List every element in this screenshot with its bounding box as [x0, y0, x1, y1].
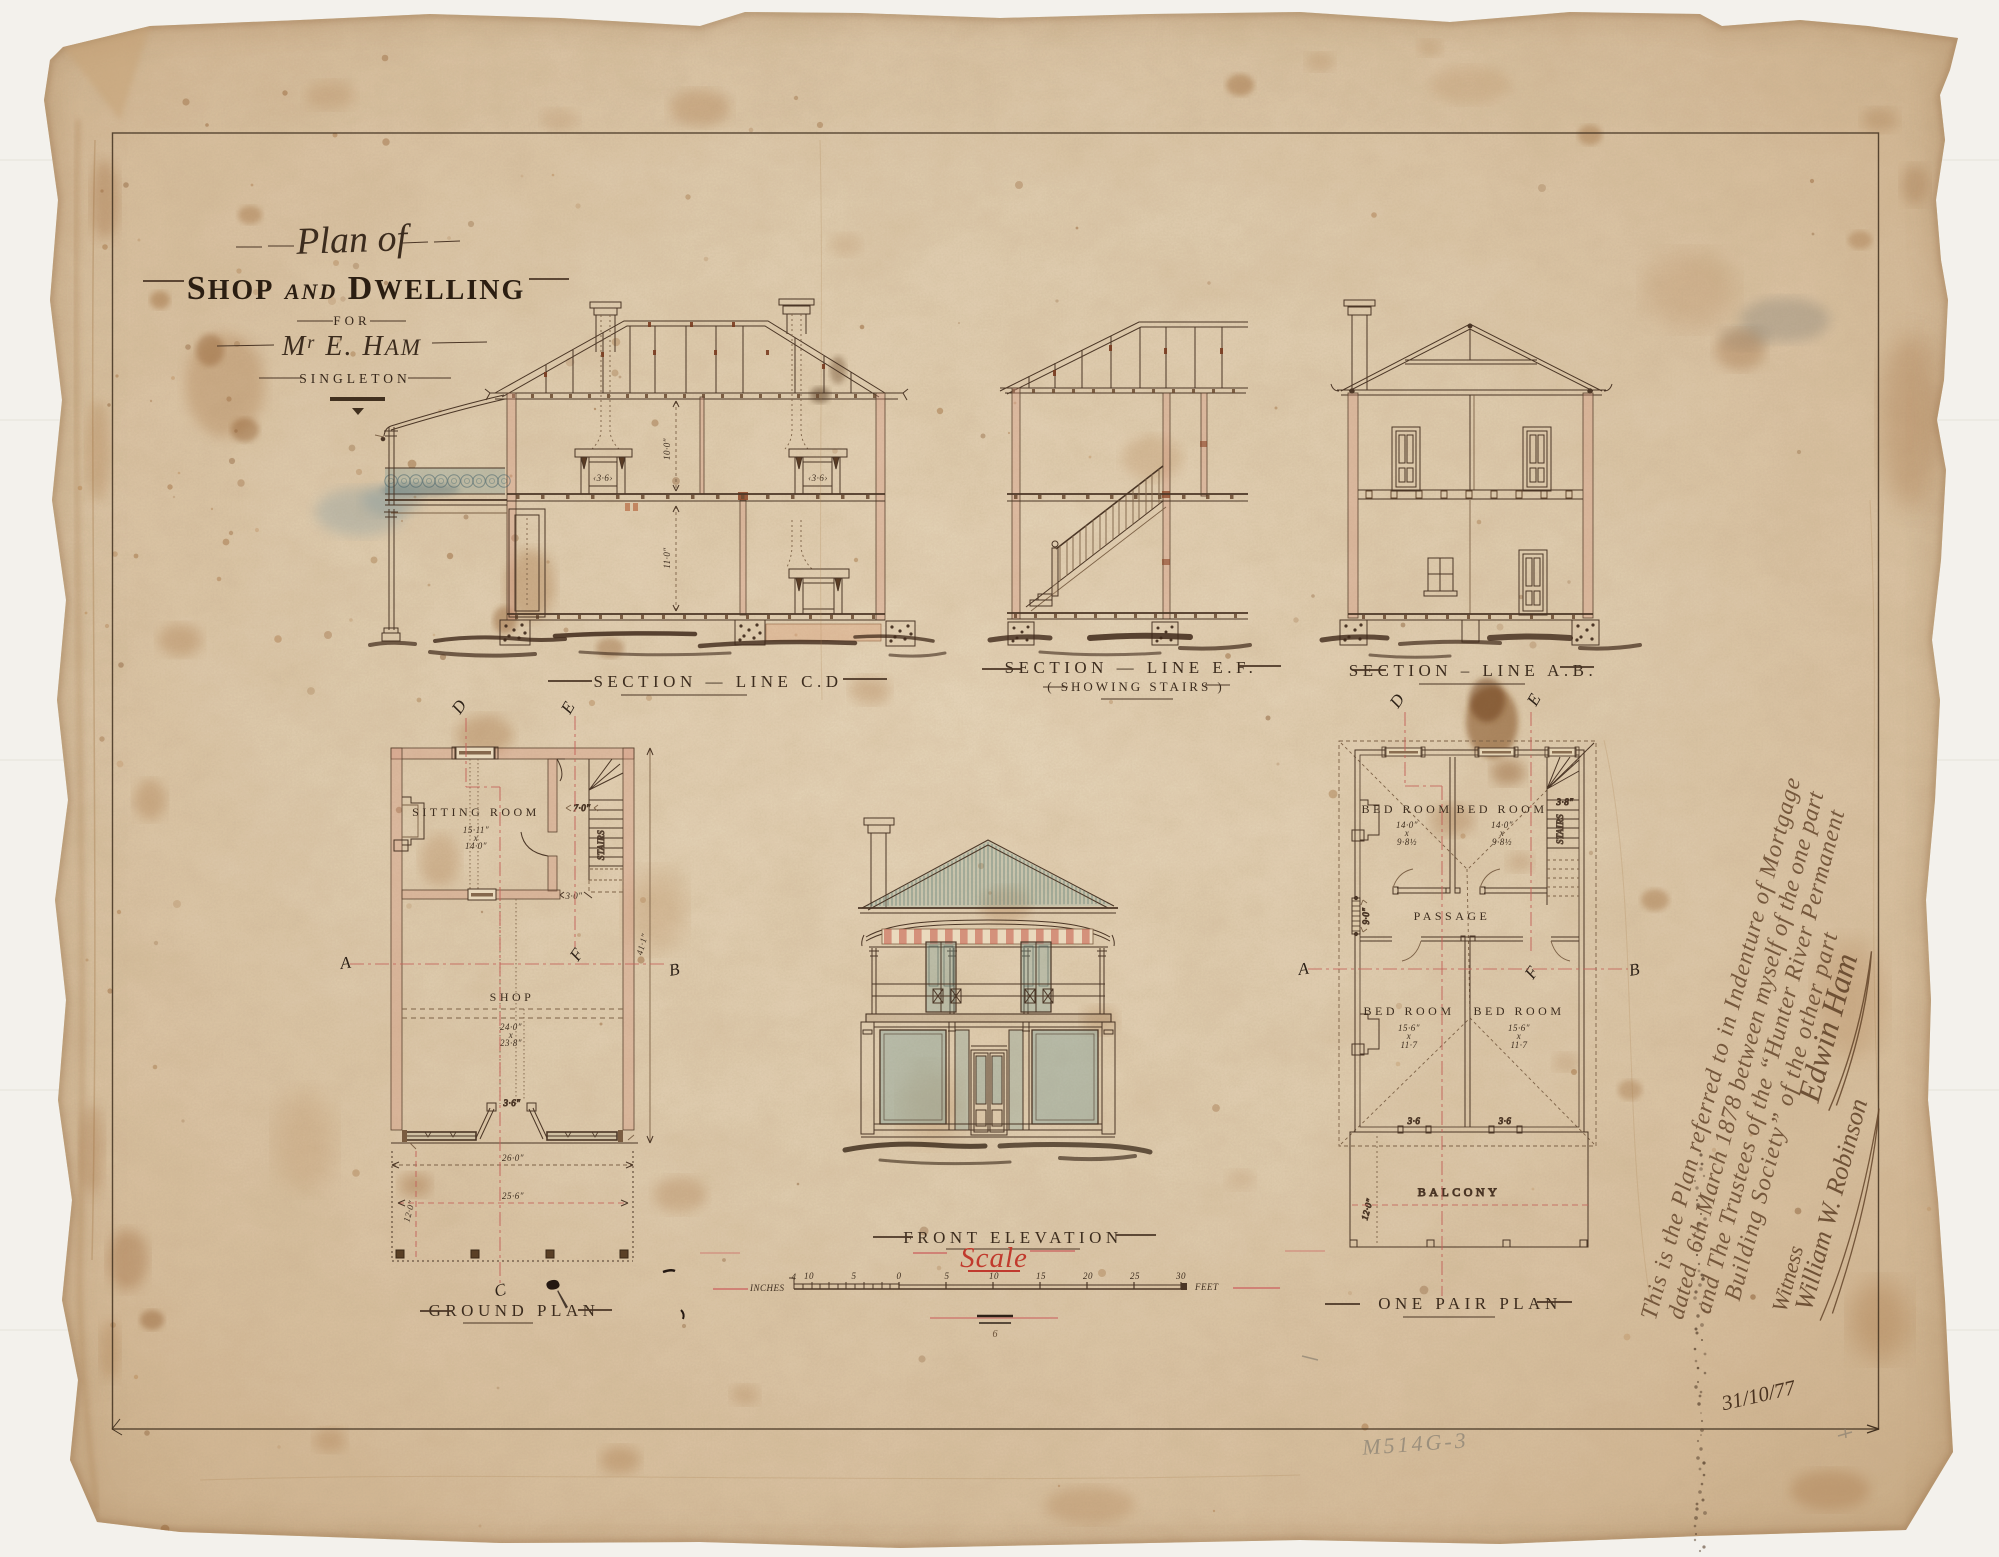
svg-text:7·0″: 7·0″: [574, 803, 591, 813]
svg-text:SINGLETON: SINGLETON: [299, 371, 411, 386]
svg-text:BED ROOM: BED ROOM: [1473, 1004, 1564, 1018]
svg-text:3·6: 3·6: [1498, 1116, 1512, 1126]
svg-text:25: 25: [1130, 1271, 1140, 1281]
svg-text:FOR: FOR: [333, 313, 370, 328]
svg-text:FEET: FEET: [1194, 1282, 1219, 1292]
svg-text:BED ROOM: BED ROOM: [1456, 802, 1547, 816]
svg-text:PASSAGE: PASSAGE: [1414, 909, 1491, 923]
svg-text:Scale: Scale: [960, 1242, 1028, 1274]
svg-text:Plan of: Plan of: [294, 217, 412, 263]
svg-text:STAIRS: STAIRS: [1555, 814, 1565, 844]
svg-text:10·0″: 10·0″: [662, 438, 672, 460]
svg-text:5: 5: [852, 1271, 857, 1281]
svg-text:26·0″: 26·0″: [502, 1153, 524, 1163]
svg-text:GROUND PLAN: GROUND PLAN: [429, 1301, 600, 1320]
svg-text:10: 10: [989, 1271, 999, 1281]
svg-text:4: 4: [792, 1272, 797, 1282]
svg-text:BED ROOM: BED ROOM: [1363, 1004, 1454, 1018]
svg-text:3·0″: 3·0″: [565, 891, 583, 901]
svg-text:20: 20: [1083, 1271, 1093, 1281]
svg-text:15: 15: [1036, 1271, 1046, 1281]
svg-text:3·8″: 3·8″: [1556, 797, 1574, 807]
svg-text:9·8½: 9·8½: [1397, 837, 1417, 847]
svg-text:5: 5: [945, 1271, 950, 1281]
svg-text:SITTING ROOM: SITTING ROOM: [412, 805, 540, 819]
svg-text:SECTION — LINE C.D: SECTION — LINE C.D: [593, 672, 842, 691]
svg-text:STAIRS: STAIRS: [596, 830, 606, 860]
svg-text:6: 6: [993, 1329, 998, 1340]
svg-text:( SHOWING STAIRS ): ( SHOWING STAIRS ): [1047, 679, 1225, 694]
svg-text:25·6″: 25·6″: [502, 1191, 524, 1201]
svg-text:11·0″: 11·0″: [662, 547, 672, 568]
svg-text:BED ROOM: BED ROOM: [1361, 802, 1452, 816]
svg-text:‹3·6›: ‹3·6›: [593, 473, 613, 483]
svg-text:0: 0: [897, 1271, 902, 1281]
svg-text:SHOP AND DWELLING: SHOP AND DWELLING: [187, 270, 526, 307]
svg-text:BALCONY: BALCONY: [1418, 1185, 1501, 1199]
svg-text:SECTION — LINE E.F.: SECTION — LINE E.F.: [1005, 658, 1258, 677]
svg-text:3·6: 3·6: [1407, 1116, 1421, 1126]
svg-text:SHOP: SHOP: [490, 990, 535, 1004]
svg-text:10: 10: [804, 1271, 814, 1281]
svg-text:30: 30: [1175, 1271, 1186, 1281]
svg-text:9·8½: 9·8½: [1492, 837, 1512, 847]
svg-text:9·0″: 9·0″: [1361, 908, 1371, 925]
svg-text:14·0″: 14·0″: [465, 841, 487, 851]
svg-text:3·6″: 3·6″: [503, 1098, 521, 1108]
svg-text:11·7: 11·7: [1400, 1040, 1417, 1050]
svg-text:Mr E. HAM: Mr E. HAM: [281, 331, 422, 362]
svg-text:ONE PAIR PLAN: ONE PAIR PLAN: [1378, 1294, 1562, 1313]
svg-text:11·7: 11·7: [1510, 1040, 1527, 1050]
svg-text:INCHES: INCHES: [749, 1283, 785, 1293]
svg-text:23·8″: 23·8″: [500, 1038, 522, 1048]
svg-text:‹3·6›: ‹3·6›: [808, 473, 828, 483]
svg-text:SECTION – LINE A.B.: SECTION – LINE A.B.: [1349, 661, 1597, 680]
